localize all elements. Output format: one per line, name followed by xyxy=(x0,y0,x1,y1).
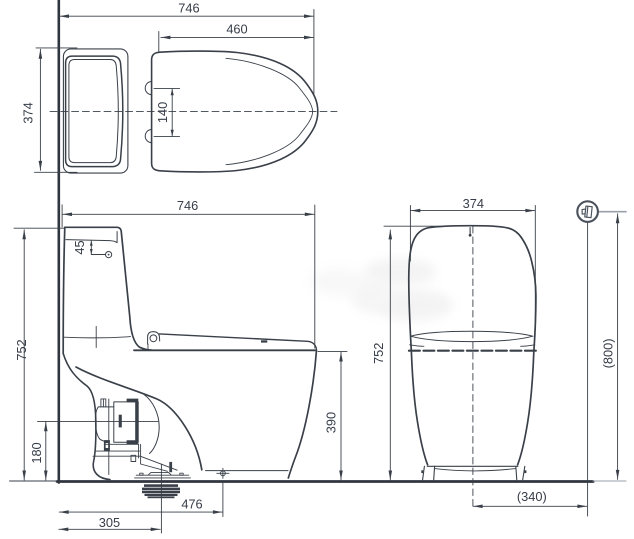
svg-text:752: 752 xyxy=(14,339,29,360)
svg-text:45: 45 xyxy=(72,240,87,254)
svg-text:180: 180 xyxy=(29,442,44,463)
svg-text:374: 374 xyxy=(463,196,484,211)
svg-text:(800): (800) xyxy=(600,338,615,368)
svg-text:390: 390 xyxy=(323,412,338,433)
svg-text:752: 752 xyxy=(371,343,386,364)
svg-text:305: 305 xyxy=(99,515,120,530)
svg-text:(340): (340) xyxy=(517,489,547,504)
svg-text:476: 476 xyxy=(181,497,202,512)
svg-text:374: 374 xyxy=(21,102,36,123)
svg-text:140: 140 xyxy=(155,102,170,123)
svg-text:746: 746 xyxy=(178,1,199,16)
svg-text:460: 460 xyxy=(226,22,247,37)
svg-text:746: 746 xyxy=(177,198,198,213)
